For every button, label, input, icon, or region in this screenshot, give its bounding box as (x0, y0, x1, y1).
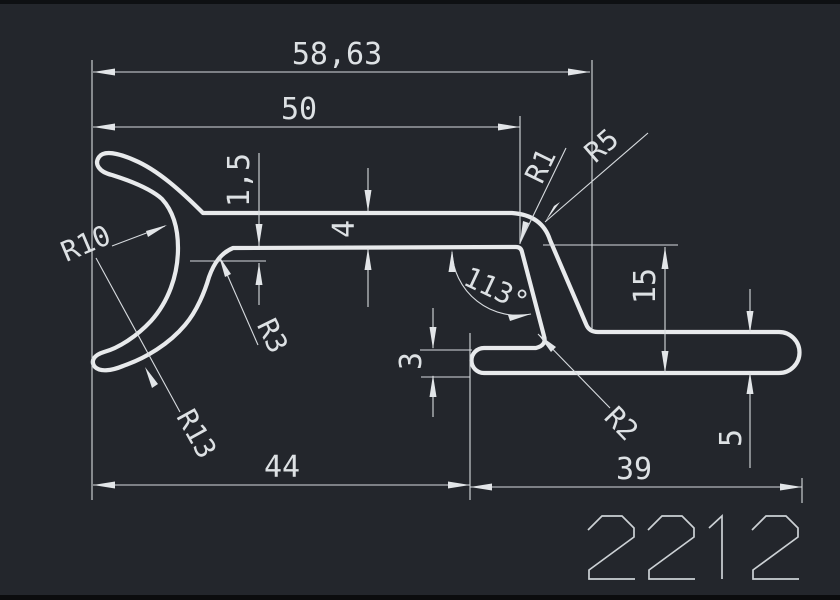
dim-foot-right-thickness: 5 (714, 429, 749, 447)
top-border-strip (0, 0, 840, 4)
canvas-background (0, 0, 840, 600)
dim-left-width: 44 (264, 450, 300, 485)
dim-upper-width: 50 (281, 92, 317, 127)
dim-total-width: 58,63 (292, 37, 382, 72)
cad-viewport: 58,63 50 44 39 15 5 3 4 1,5 113° R10 R13… (0, 0, 840, 600)
drawing-canvas[interactable]: 58,63 50 44 39 15 5 3 4 1,5 113° R10 R13… (0, 0, 840, 600)
dim-wall-bar: 4 (327, 220, 362, 238)
dim-lip-offset: 1,5 (222, 153, 257, 207)
dim-foot-left-thickness: 3 (394, 352, 429, 370)
bottom-border-strip (0, 595, 840, 600)
dim-foot-width: 39 (616, 452, 652, 487)
dim-height-right: 15 (628, 268, 663, 304)
